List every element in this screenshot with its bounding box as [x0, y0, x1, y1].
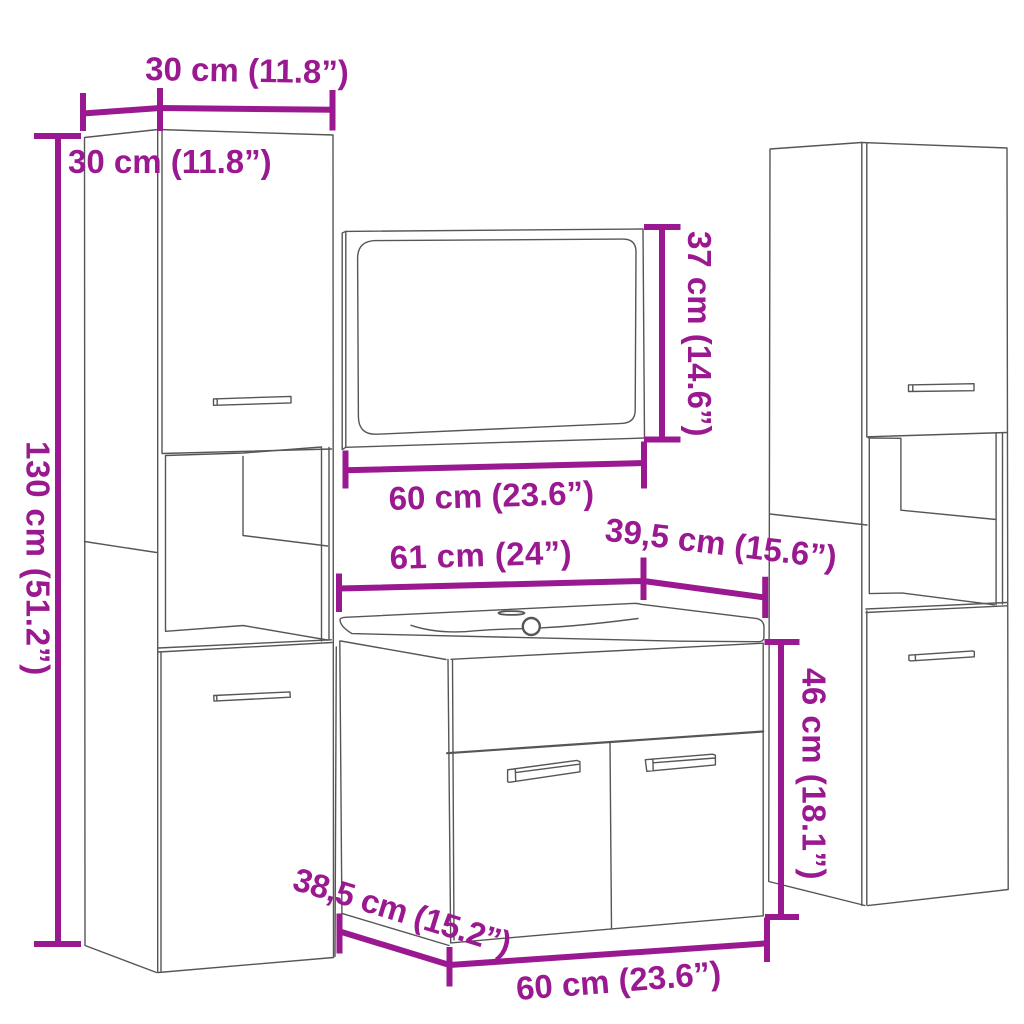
- svg-text:60 cm (23.6”): 60 cm (23.6”): [388, 474, 594, 517]
- svg-text:30 cm (11.8”): 30 cm (11.8”): [145, 50, 349, 91]
- svg-text:39,5 cm (15.6”): 39,5 cm (15.6”): [603, 511, 839, 576]
- svg-text:61 cm (24”): 61 cm (24”): [389, 534, 572, 576]
- svg-text:130 cm (51.2”): 130 cm (51.2”): [20, 441, 57, 676]
- svg-text:37 cm (14.6”): 37 cm (14.6”): [681, 231, 718, 436]
- svg-text:46 cm (18.1”): 46 cm (18.1”): [796, 668, 833, 880]
- svg-text:38,5 cm (15.2”): 38,5 cm (15.2”): [289, 860, 515, 961]
- svg-text:60 cm (23.6”): 60 cm (23.6”): [515, 954, 723, 1007]
- svg-text:30 cm (11.8”): 30 cm (11.8”): [68, 143, 272, 180]
